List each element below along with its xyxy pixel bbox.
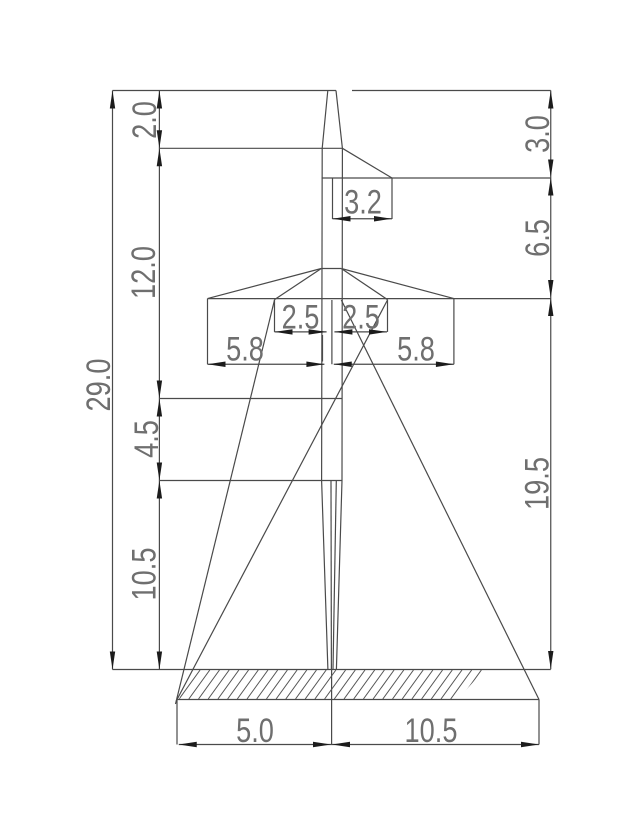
svg-text:12.0: 12.0 [124, 246, 163, 299]
svg-text:10.5: 10.5 [125, 548, 164, 601]
svg-text:3.0: 3.0 [518, 115, 557, 153]
svg-text:5.8: 5.8 [226, 330, 264, 369]
svg-text:2.5: 2.5 [282, 298, 320, 337]
svg-text:10.5: 10.5 [405, 711, 458, 750]
svg-text:29.0: 29.0 [79, 359, 118, 412]
svg-text:4.5: 4.5 [127, 420, 166, 458]
svg-text:3.2: 3.2 [344, 183, 382, 222]
svg-text:19.5: 19.5 [518, 457, 557, 510]
svg-text:2.0: 2.0 [125, 101, 164, 139]
svg-text:5.8: 5.8 [397, 330, 435, 369]
svg-text:6.5: 6.5 [518, 219, 557, 257]
svg-text:5.0: 5.0 [236, 711, 274, 750]
svg-text:2.5: 2.5 [342, 298, 380, 337]
